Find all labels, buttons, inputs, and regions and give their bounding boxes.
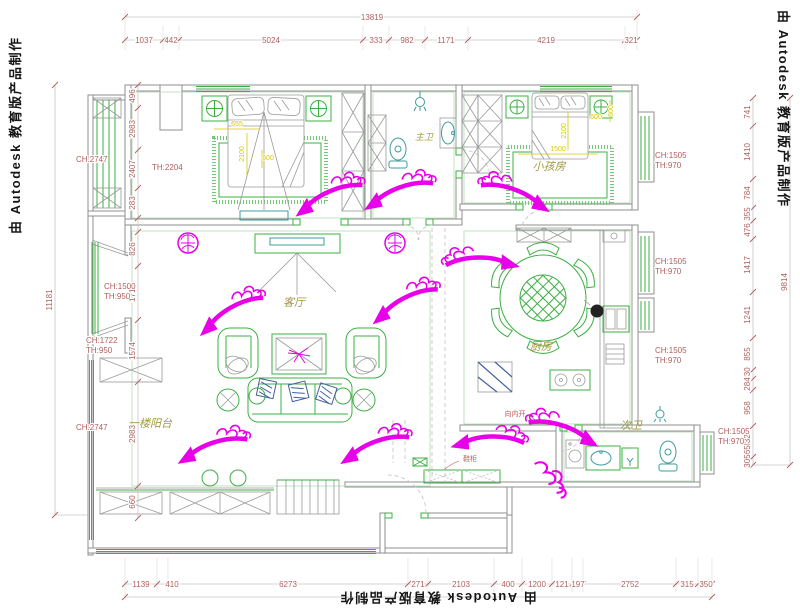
interior-dim: 1500	[550, 146, 566, 153]
height-label: TH:970	[655, 267, 682, 276]
coffee-table	[272, 334, 326, 374]
dim-label: 958	[743, 401, 752, 415]
master-bathroom	[368, 91, 502, 173]
dim-label: 1574	[128, 342, 137, 360]
dim-label: 13819	[361, 13, 384, 22]
room-label-second-bath: 次卫	[620, 419, 643, 432]
dim-label: 321	[624, 36, 638, 45]
dim-label: 355	[743, 207, 752, 221]
room-label-kids: 小孩房	[533, 160, 567, 173]
room-label-balcony: 一楼阳台	[128, 417, 173, 430]
dim-label: 4219	[537, 36, 555, 45]
side-table	[217, 389, 239, 411]
height-label: CH:1505	[718, 427, 750, 436]
dim-label: 6273	[279, 580, 297, 589]
height-label: TH:970	[655, 161, 682, 170]
plant-icon	[178, 233, 198, 253]
dim-label: 5024	[262, 36, 280, 45]
dim-label: 1200	[528, 580, 546, 589]
side-table	[353, 389, 375, 411]
tv-wall-unit	[255, 234, 340, 253]
watermark-left: 由 Autodesk 教育版产品制作	[8, 37, 23, 234]
room-label-living: 客厅	[283, 296, 307, 309]
cad-plot-canvas: 13819 1037 442 5024 333 982 1171 4219 32…	[0, 0, 800, 612]
sofa	[248, 378, 352, 422]
dim-label: 11181	[45, 289, 54, 311]
height-label: CH:1505	[655, 257, 687, 266]
master-bedroom	[202, 93, 364, 220]
floor-plan-svg: 13819 1037 442 5024 333 982 1171 4219 32…	[0, 0, 800, 612]
counter	[584, 230, 632, 428]
flow-arrow	[336, 422, 415, 464]
height-label: CH:2747	[76, 155, 108, 164]
height-label: TH:950	[86, 346, 113, 355]
dim-label: 2103	[452, 580, 470, 589]
interior-dim: 2100	[239, 146, 246, 162]
dim-label: 442	[164, 36, 178, 45]
dim-label: 826	[128, 242, 137, 256]
dim-label: 2407	[128, 160, 137, 178]
dim-label: 305	[743, 454, 752, 468]
dim-label: 2752	[621, 580, 639, 589]
wardrobe	[342, 93, 364, 211]
room-labels: 主卫 小孩房 客厅 厨房 次卫 一楼阳台	[128, 132, 643, 432]
watermark-bottom: 由 Autodesk 教育版产品制作	[339, 590, 536, 605]
shoe-cabinet	[424, 470, 500, 483]
dim-label: 2983	[128, 120, 137, 138]
plant-icon	[385, 233, 405, 253]
dim-label: 1171	[437, 36, 455, 45]
armchair	[218, 328, 258, 378]
flow-arrow	[360, 168, 439, 210]
height-label: CH:1722	[86, 336, 118, 345]
room-label-master-bath: 主卫	[415, 132, 434, 142]
height-label: TH:970	[655, 356, 682, 365]
height-label: TH:950	[104, 292, 131, 301]
nightstand-right	[306, 96, 331, 121]
dim-label: 496	[128, 89, 137, 103]
dim-label: 400	[501, 580, 515, 589]
room-label-kitchen: 厨房	[530, 340, 553, 353]
stairs	[277, 480, 339, 514]
dim-label: 197	[571, 580, 585, 589]
annotation-door: 向内开	[505, 409, 526, 418]
armchair	[346, 328, 386, 378]
interior-dim: 2100	[561, 123, 568, 139]
dim-label: 1037	[135, 36, 153, 45]
dimension-chain-top: 13819 1037 442 5024 333 982 1171 4219 32…	[122, 10, 640, 50]
flow-arrows	[174, 168, 602, 499]
interior-dim: 600	[590, 114, 602, 121]
dim-label: 982	[400, 36, 414, 45]
dim-label: 660	[128, 495, 137, 509]
toilet-icon	[389, 138, 407, 168]
flow-arrow	[174, 424, 252, 464]
dim-label: 315	[680, 580, 694, 589]
dim-label: 410	[165, 580, 179, 589]
dim-label: 271	[411, 580, 425, 589]
dim-label: 1241	[743, 306, 752, 324]
dim-label: 283	[128, 196, 137, 210]
watermark-right: 由 Autodesk 教育版产品制作	[776, 10, 791, 207]
height-label: CH:1505	[655, 151, 687, 160]
flow-swirl	[529, 457, 574, 499]
dim-label: 121	[555, 580, 569, 589]
interior-dim: 600	[608, 105, 615, 117]
interior-dim: 600	[262, 155, 274, 162]
height-label: CH:2747	[76, 423, 108, 432]
flow-arrow	[450, 415, 530, 460]
height-label: TH:2204	[152, 163, 183, 172]
height-label: TH:970	[718, 437, 745, 446]
height-label: CH:1505	[655, 346, 687, 355]
stove-icon	[550, 370, 590, 390]
dim-label: 333	[369, 36, 383, 45]
dim-label: 1410	[743, 143, 752, 161]
dim-label: 1139	[132, 580, 150, 589]
height-label: CH:1500	[104, 282, 136, 291]
stool	[202, 470, 218, 486]
annotation-shoe-cabinet: 鞋柜	[463, 454, 477, 463]
corner-unit	[478, 362, 512, 392]
dim-label: 476	[743, 223, 752, 237]
shower-head-icon	[414, 91, 426, 111]
dim-label: 1417	[743, 256, 752, 274]
dim-label: 9814	[780, 273, 789, 291]
dim-label: 350	[699, 580, 713, 589]
dim-label: 284	[743, 377, 752, 391]
dim-label: 855	[743, 347, 752, 361]
stool	[230, 470, 246, 486]
dim-label: 741	[743, 105, 752, 119]
flow-arrow	[439, 235, 520, 282]
interior-dim: 655	[231, 121, 243, 128]
flow-arrow	[364, 274, 445, 325]
nightstand-left	[202, 96, 227, 121]
walls	[88, 85, 714, 555]
dim-label: 784	[743, 186, 752, 200]
